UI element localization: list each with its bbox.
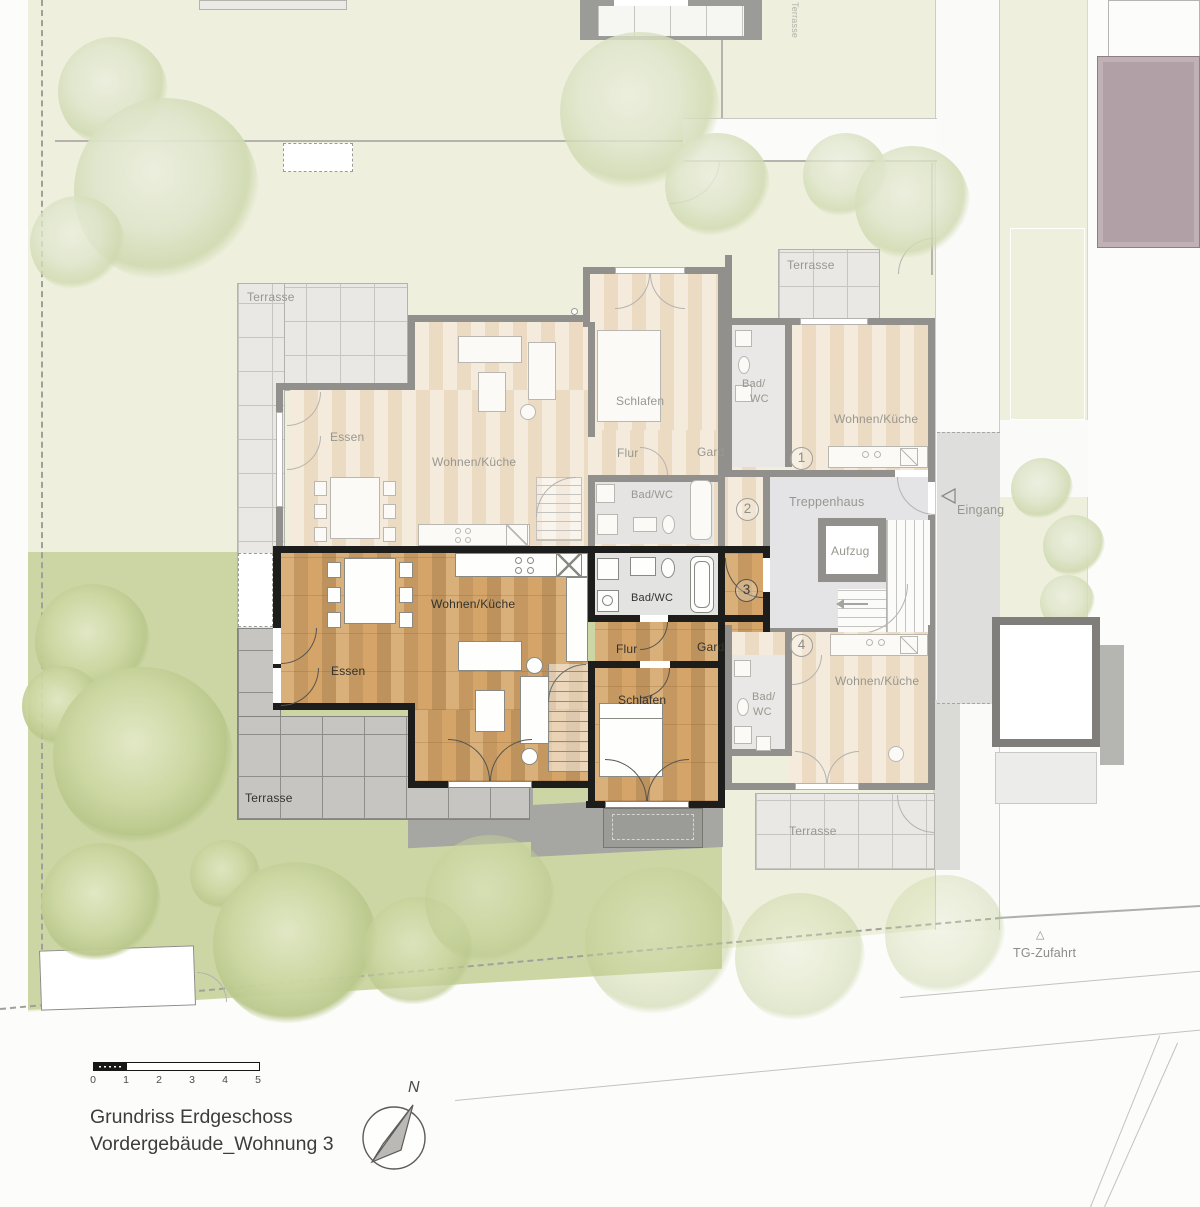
cooktop-burner xyxy=(874,451,881,458)
apartment2-schlafen-label: Schlafen xyxy=(616,394,664,408)
tg-zufahrt-label: TG-Zufahrt xyxy=(1013,946,1076,960)
washing-machine xyxy=(735,330,752,347)
bathtub-inner xyxy=(694,561,710,608)
apartment1-bad-label-2: WC xyxy=(750,393,769,405)
tree xyxy=(855,146,970,261)
shower xyxy=(597,514,618,535)
building-shadow xyxy=(933,700,960,870)
neighbor-terrasse-label: Terrasse xyxy=(790,2,800,38)
aufzug-label: Aufzug xyxy=(831,544,870,558)
toilet xyxy=(662,515,675,534)
road-line-branch xyxy=(1104,1043,1178,1207)
chair xyxy=(383,481,396,496)
cooktop-burner xyxy=(866,639,873,646)
site-marker-dot xyxy=(571,308,578,315)
window-bay xyxy=(238,553,273,627)
wall xyxy=(725,749,785,756)
tree xyxy=(585,867,735,1017)
chair xyxy=(399,562,413,578)
treppenhaus-label: Treppenhaus xyxy=(789,495,864,509)
apartment4-bad-label-1: Bad/ xyxy=(752,691,775,703)
apartment2-essen-label: Essen xyxy=(330,430,364,444)
cooktop-burner xyxy=(515,567,522,574)
washing-machine xyxy=(734,660,751,677)
tree xyxy=(213,862,378,1027)
apartment1-wohnen-label: Wohnen/Küche xyxy=(834,412,918,426)
chair xyxy=(314,527,327,542)
chair xyxy=(383,504,396,519)
north-compass-icon xyxy=(356,1090,434,1178)
kitchen-counter-side xyxy=(566,577,588,662)
wall xyxy=(408,315,415,390)
wall xyxy=(588,322,595,437)
apartment3-essen-label: Essen xyxy=(331,664,365,678)
sofa xyxy=(520,676,550,744)
window xyxy=(276,412,283,507)
door-gap xyxy=(640,661,670,668)
apartment3-wohnen-label: Wohnen/Küche xyxy=(431,597,515,611)
chair xyxy=(399,612,413,628)
apartment1-number-badge: 1 xyxy=(790,447,813,470)
scale-tick-4: 4 xyxy=(219,1074,231,1086)
chair xyxy=(327,562,341,578)
wall xyxy=(588,615,770,622)
french-door-gap xyxy=(605,801,689,808)
wall xyxy=(408,315,588,322)
bath-sink xyxy=(630,557,656,576)
kitchen-sink xyxy=(900,636,918,654)
tree xyxy=(665,133,770,238)
apartment2-number-badge: 2 xyxy=(736,498,759,521)
sofa xyxy=(458,336,522,363)
scale-tick-1: 1 xyxy=(120,1074,132,1086)
bedroom-balcony-inner xyxy=(612,814,694,840)
wall xyxy=(588,475,595,546)
french-door-gap xyxy=(448,781,532,788)
plan-title-line1: Grundriss Erdgeschoss xyxy=(90,1104,334,1131)
apartment2-wohnen-label: Wohnen/Küche xyxy=(432,455,516,469)
apartment2-flur-label: Flur xyxy=(617,446,638,460)
wall xyxy=(273,546,770,553)
door-gap xyxy=(273,628,281,664)
wall xyxy=(718,546,725,808)
chair xyxy=(314,504,327,519)
garage xyxy=(992,617,1100,747)
scale-tick-5: 5 xyxy=(252,1074,264,1086)
armchair xyxy=(475,690,505,732)
window xyxy=(800,318,868,325)
apartment4-number-badge: 4 xyxy=(790,634,813,657)
apartment4-bad-label-2: WC xyxy=(753,706,772,718)
eingang-arrow-icon xyxy=(939,487,958,506)
apartment1-bad-label-1: Bad/ xyxy=(742,378,765,390)
white-building-topright xyxy=(1108,0,1200,64)
wall xyxy=(408,703,415,788)
chair xyxy=(399,587,413,603)
wall xyxy=(588,553,595,622)
wall xyxy=(276,383,415,390)
cooktop-burner xyxy=(515,557,522,564)
armchair xyxy=(478,372,506,412)
apartment4-terrasse-label: Terrasse xyxy=(789,824,837,838)
neighbor-terrace-strip xyxy=(199,0,347,10)
scale-tick-0: 0 xyxy=(87,1074,99,1086)
chair xyxy=(327,587,341,603)
tree xyxy=(425,835,555,965)
property-boundary-left xyxy=(41,0,43,1010)
chair xyxy=(383,527,396,542)
kitchen-sink xyxy=(506,524,528,546)
bed xyxy=(597,330,661,422)
skylight-dashed-box xyxy=(283,143,353,172)
cooktop-burner xyxy=(465,537,471,543)
cooktop-burner xyxy=(862,451,869,458)
tg-marker-icon: △ xyxy=(1036,928,1045,941)
wall xyxy=(588,668,595,808)
neighbor-plot-outline xyxy=(1010,228,1085,420)
wall xyxy=(928,625,935,790)
road-line-branch xyxy=(1090,1035,1160,1207)
garage-shadow xyxy=(1100,645,1124,765)
dining-table xyxy=(330,477,380,539)
side-table xyxy=(526,657,543,674)
apartment3-flur-label: Flur xyxy=(616,642,637,656)
north-label: N xyxy=(408,1079,420,1097)
neighbor-balcony-top-inner xyxy=(598,6,744,36)
shower xyxy=(734,726,752,744)
toilet xyxy=(661,558,675,578)
wall xyxy=(583,267,590,327)
cooktop-burner xyxy=(465,528,471,534)
chair xyxy=(314,481,327,496)
side-table xyxy=(520,404,536,420)
tree xyxy=(41,843,161,963)
boundary-line-solid xyxy=(998,905,1200,919)
scale-segment xyxy=(94,1063,127,1070)
apartment4-diele-floor xyxy=(731,632,788,655)
door-gap xyxy=(763,558,770,592)
bathtub xyxy=(690,480,712,540)
bath-sink xyxy=(633,517,657,532)
plan-title: Grundriss Erdgeschoss Vordergebäude_Wohn… xyxy=(90,1104,334,1158)
apartment3-terrasse-label: Terrasse xyxy=(245,791,293,805)
plan-title-line2: Vordergebäude_Wohnung 3 xyxy=(90,1131,334,1158)
chair xyxy=(327,612,341,628)
road-line xyxy=(455,1028,1200,1101)
cooktop-burner xyxy=(455,537,461,543)
cooktop-burner xyxy=(878,639,885,646)
tree xyxy=(735,893,865,1023)
wall xyxy=(718,267,725,546)
shower xyxy=(597,558,619,580)
kitchen-sink xyxy=(556,553,582,577)
sofa xyxy=(528,342,556,400)
apartment2-bad-label: Bad/WC xyxy=(631,489,673,501)
wall xyxy=(273,703,415,710)
tree xyxy=(1011,458,1073,520)
parking-stall xyxy=(995,752,1097,804)
side-table xyxy=(888,746,904,762)
washing-machine xyxy=(596,484,615,503)
tree xyxy=(1043,515,1105,577)
washing-machine-drum xyxy=(602,595,613,606)
entrance-path xyxy=(937,432,1000,704)
door-gap xyxy=(273,668,281,706)
apartment3-number-badge: 3 xyxy=(735,579,758,602)
apartment1-terrasse-label: Terrasse xyxy=(787,258,835,272)
cooktop-burner xyxy=(527,557,534,564)
window xyxy=(615,267,685,274)
cabinet xyxy=(756,736,771,751)
toilet xyxy=(737,698,749,716)
neighbor-balcony-top-gap xyxy=(614,0,688,6)
wall xyxy=(928,318,935,477)
door-gap xyxy=(895,470,928,477)
tree xyxy=(885,875,1005,995)
french-door-gap xyxy=(795,783,859,790)
cooktop-burner xyxy=(455,528,461,534)
scale-bar xyxy=(93,1062,260,1071)
scale-tick-3: 3 xyxy=(186,1074,198,1086)
mauve-building xyxy=(1097,56,1200,248)
sofa xyxy=(458,641,522,671)
floor-plan-canvas: Terrasse Terrasse Terrasse Terrasse Terr… xyxy=(0,0,1200,1207)
apartment3-bad-label: Bad/WC xyxy=(631,592,673,604)
wall xyxy=(785,325,792,467)
wall xyxy=(725,255,732,477)
apartment2-terrasse-label: Terrasse xyxy=(247,290,295,304)
apartment3-schlafen-label: Schlafen xyxy=(618,693,666,707)
apartment4-wohnen-label: Wohnen/Küche xyxy=(835,674,919,688)
scale-tick-2: 2 xyxy=(153,1074,165,1086)
kitchen-sink xyxy=(900,448,918,466)
tree xyxy=(53,667,233,847)
toilet xyxy=(738,356,750,374)
stair-direction-arrow xyxy=(836,599,844,609)
wall xyxy=(763,470,770,546)
cooktop-burner xyxy=(527,567,534,574)
tree xyxy=(30,196,125,291)
eingang-label: Eingang xyxy=(957,503,1004,517)
stair-direction-line xyxy=(842,603,868,605)
door-gap xyxy=(640,615,668,622)
wall xyxy=(725,625,732,790)
dining-table xyxy=(344,558,396,624)
bed-pillow-line xyxy=(599,718,663,719)
